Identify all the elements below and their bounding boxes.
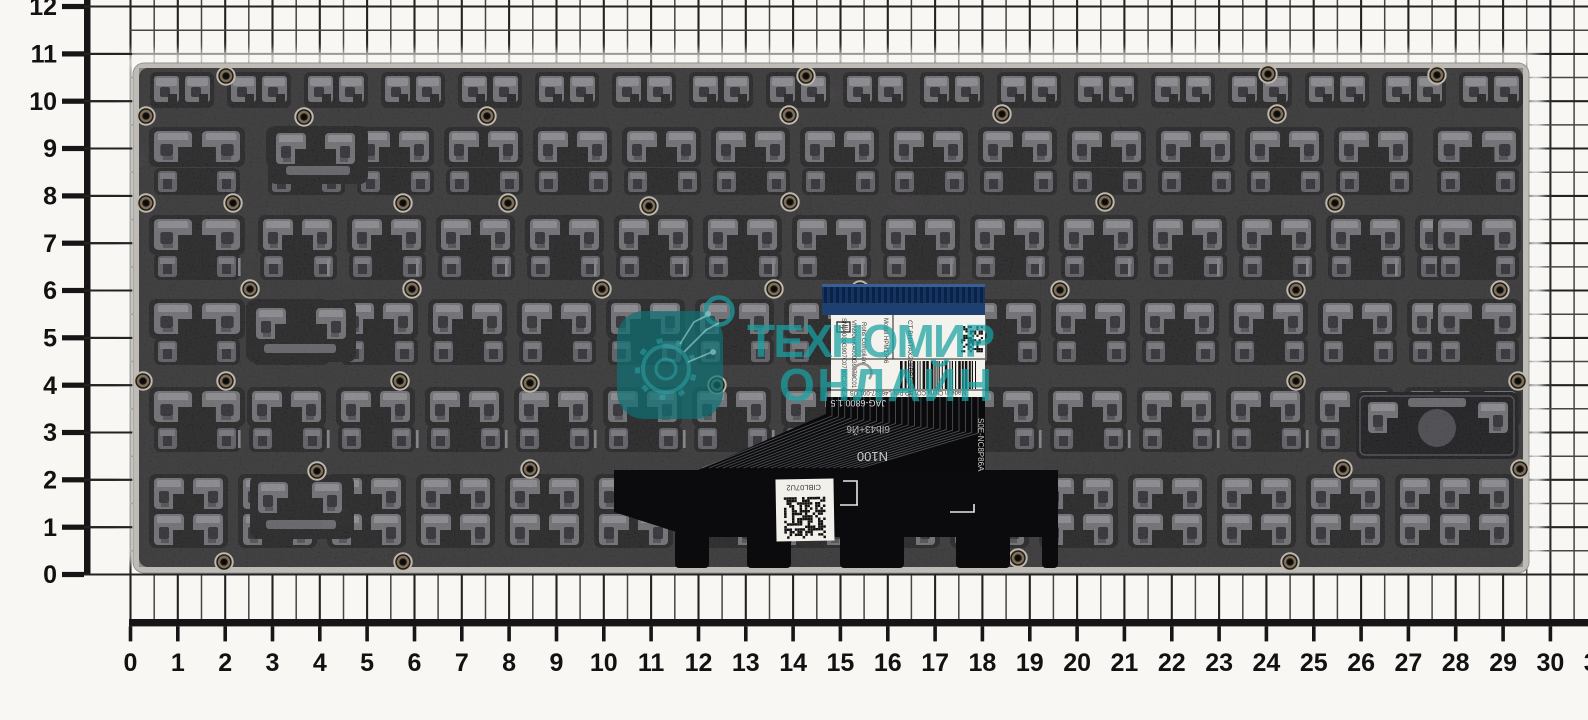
- svg-text:12: 12: [29, 0, 57, 21]
- svg-text:30: 30: [1536, 649, 1564, 677]
- svg-text:27: 27: [1394, 649, 1422, 677]
- svg-text:5: 5: [43, 325, 57, 353]
- svg-text:10: 10: [29, 88, 57, 116]
- svg-text:S0E-NC8P86A: S0E-NC8P86A: [976, 418, 985, 472]
- svg-text:6: 6: [408, 649, 422, 677]
- svg-text:21: 21: [1110, 649, 1138, 677]
- svg-text:25: 25: [1300, 649, 1328, 677]
- svg-text:N100: N100: [857, 449, 888, 464]
- svg-text:4: 4: [43, 372, 57, 400]
- svg-text:7: 7: [43, 230, 57, 258]
- svg-text:9: 9: [550, 649, 564, 677]
- svg-text:14: 14: [779, 649, 807, 677]
- svg-text:6: 6: [43, 277, 57, 305]
- svg-text:1: 1: [171, 649, 185, 677]
- svg-text:23: 23: [1205, 649, 1233, 677]
- svg-text:3: 3: [266, 649, 280, 677]
- svg-text:3: 3: [43, 419, 57, 447]
- svg-text:0: 0: [43, 561, 57, 589]
- svg-text:12: 12: [685, 649, 713, 677]
- svg-text:13: 13: [732, 649, 760, 677]
- svg-text:1: 1: [43, 514, 57, 542]
- svg-text:19: 19: [1016, 649, 1044, 677]
- svg-text:31: 31: [1584, 649, 1588, 677]
- svg-text:7: 7: [455, 649, 469, 677]
- svg-text:CIBL07U2: CIBL07U2: [786, 483, 821, 493]
- svg-text:26: 26: [1347, 649, 1375, 677]
- svg-text:8: 8: [502, 649, 516, 677]
- svg-text:28: 28: [1442, 649, 1470, 677]
- svg-text:20: 20: [1063, 649, 1091, 677]
- svg-text:6Ib43+Й6: 6Ib43+Й6: [846, 423, 890, 436]
- svg-text:24: 24: [1252, 649, 1280, 677]
- svg-text:11: 11: [31, 41, 58, 69]
- svg-text:4: 4: [313, 649, 327, 677]
- svg-text:22: 22: [1158, 649, 1186, 677]
- svg-text:29: 29: [1489, 649, 1517, 677]
- svg-text:16: 16: [874, 649, 902, 677]
- svg-text:0: 0: [124, 649, 138, 677]
- svg-text:10: 10: [590, 649, 618, 677]
- svg-text:2: 2: [218, 649, 232, 677]
- svg-text:2: 2: [43, 466, 57, 494]
- svg-text:5: 5: [360, 649, 374, 677]
- svg-text:15: 15: [826, 649, 854, 677]
- svg-text:11: 11: [638, 649, 665, 677]
- svg-text:8: 8: [43, 183, 57, 211]
- svg-text:18: 18: [968, 649, 996, 677]
- svg-text:9: 9: [43, 135, 57, 163]
- svg-text:17: 17: [921, 649, 949, 677]
